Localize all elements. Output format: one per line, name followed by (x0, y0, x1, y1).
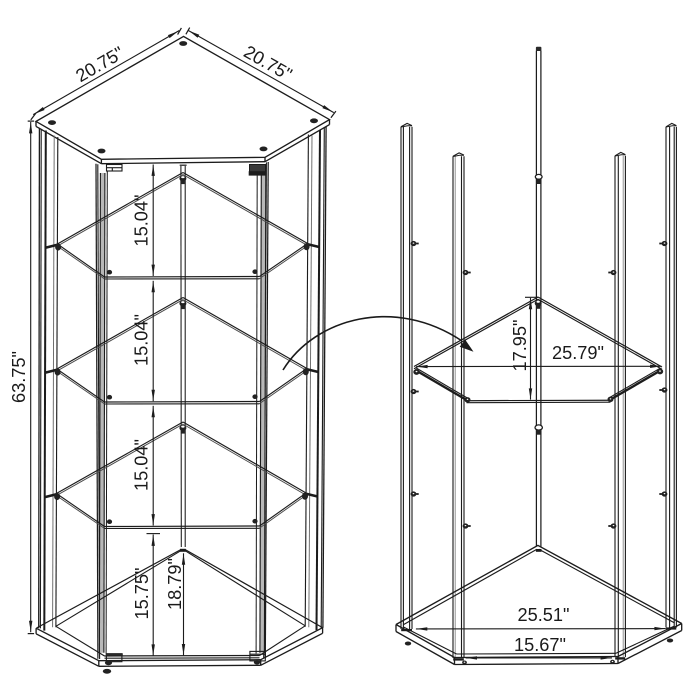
svg-text:15.75": 15.75" (132, 568, 152, 620)
svg-text:15.04": 15.04" (131, 314, 151, 366)
svg-text:18.79": 18.79" (165, 558, 185, 610)
svg-text:25.79": 25.79" (552, 343, 604, 363)
svg-text:15.04": 15.04" (131, 439, 151, 491)
svg-text:63.75": 63.75" (9, 351, 29, 403)
svg-text:25.51": 25.51" (518, 605, 570, 625)
svg-text:15.04": 15.04" (131, 195, 151, 247)
svg-text:17.95": 17.95" (510, 320, 530, 372)
svg-text:15.67": 15.67" (514, 635, 566, 655)
